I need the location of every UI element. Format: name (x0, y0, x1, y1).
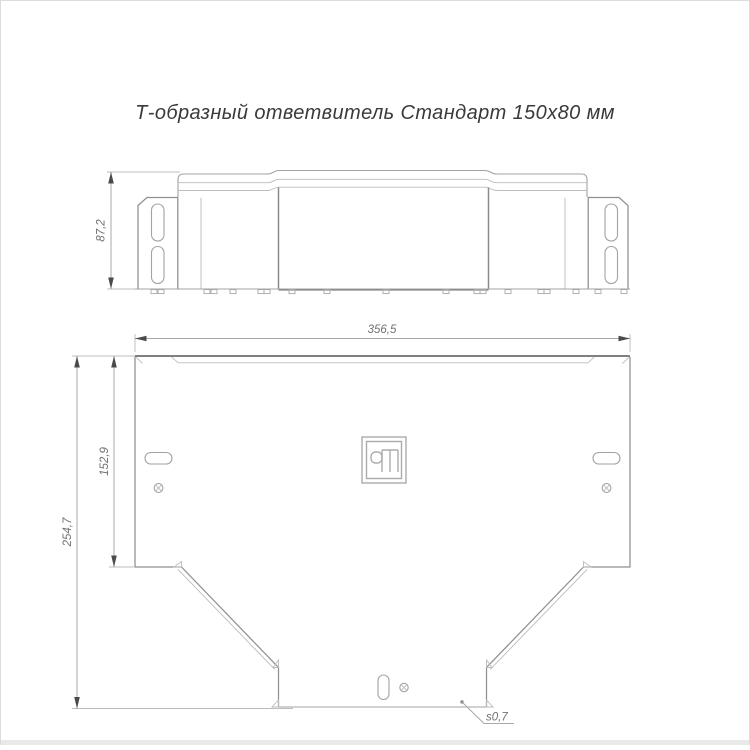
plan-view: 356,5 152,9 254,7 (62, 324, 630, 724)
plan-stem-slot (378, 675, 389, 700)
plan-left-taper-fold (178, 569, 275, 669)
side-left-hump (178, 171, 279, 198)
side-left-flange (138, 198, 178, 290)
side-right-slot-top (605, 204, 618, 241)
side-hump-bead-line-2 (178, 187, 587, 190)
plan-corner-chamfer-right (622, 357, 629, 364)
side-right-flange (588, 198, 628, 290)
thickness-leader: s0,7 (460, 700, 514, 723)
screw-hole-icon (602, 484, 611, 493)
page-bottom-strip (1, 740, 749, 745)
side-right-slot-bottom (605, 247, 618, 284)
dim-plan-width-label: 356,5 (368, 324, 397, 336)
plan-top-fold-notch-left (172, 357, 179, 363)
dim-plan-branch-height-label: 152,9 (99, 447, 111, 476)
plan-corner-chamfer-left (136, 357, 143, 364)
side-view: 87,2 (96, 171, 631, 294)
plan-left-edge (135, 357, 182, 567)
screw-hole-icon (400, 683, 408, 691)
side-hump-bead-line-1 (178, 179, 587, 182)
plan-left-slot (145, 453, 172, 465)
screw-hole-icon (154, 484, 163, 493)
technical-drawing-canvas: Т-образный ответвитель Стандарт 150х80 м… (0, 0, 750, 745)
plan-right-edge (584, 357, 631, 567)
dim-plan-width: 356,5 (135, 324, 630, 352)
plan-right-taper-fold (490, 569, 587, 669)
manufacturer-logo-icon (362, 437, 406, 483)
drawing-svg: 87,2 (1, 1, 749, 745)
dim-side-height-label: 87,2 (96, 219, 108, 242)
dim-plan-total-height: 254,7 (62, 356, 293, 709)
dim-plan-branch-height: 152,9 (99, 356, 135, 567)
plan-bend-relief-marks (174, 562, 591, 708)
side-left-slot-top (152, 204, 165, 241)
plan-right-slot (593, 453, 620, 465)
side-middle-hump (279, 171, 587, 198)
side-left-slot-bottom (152, 247, 165, 284)
thickness-label: s0,7 (486, 712, 508, 724)
side-bottom-tabs (151, 290, 627, 294)
dim-plan-total-height-label: 254,7 (62, 517, 74, 547)
plan-top-fold-notch-right (588, 357, 595, 363)
